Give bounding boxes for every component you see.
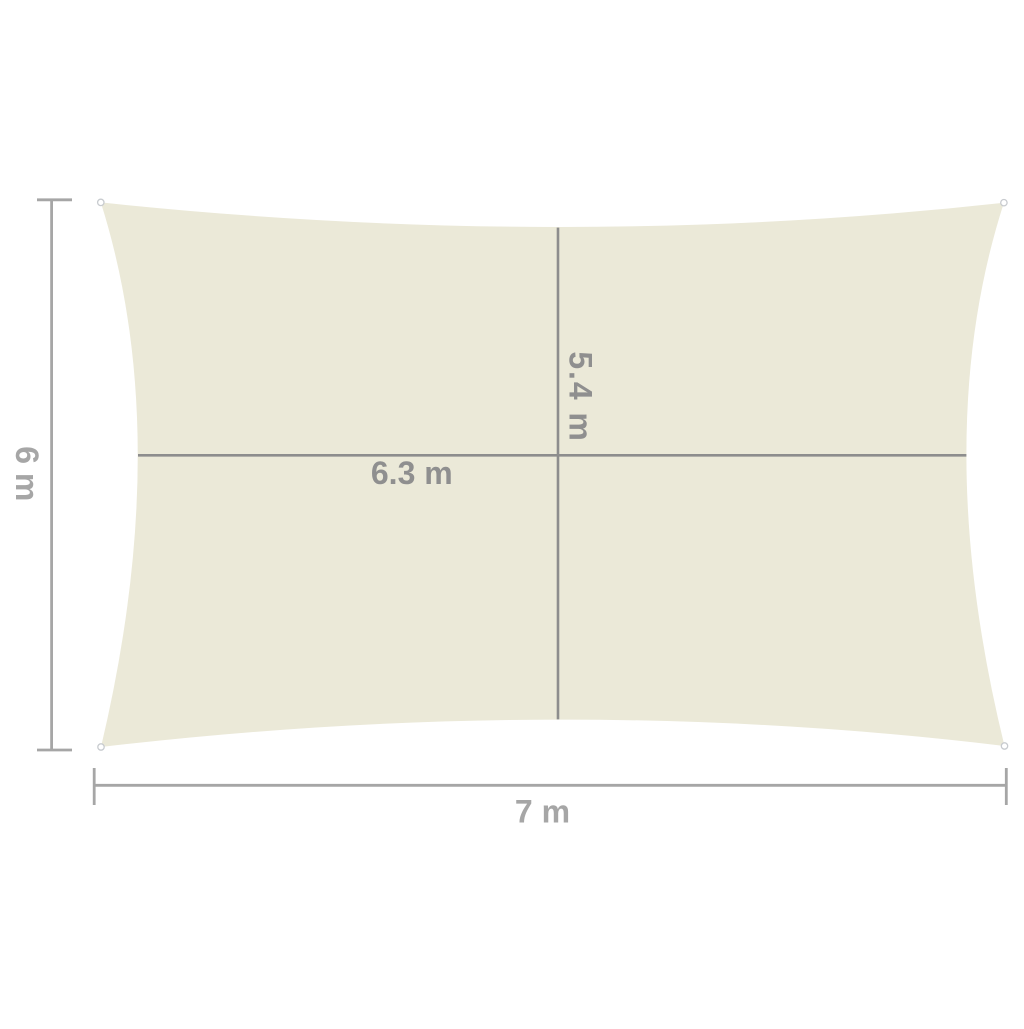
svg-text:5.4 m: 5.4 m — [563, 351, 599, 442]
svg-text:7 m: 7 m — [515, 793, 570, 829]
svg-text:6.3 m: 6.3 m — [371, 455, 453, 491]
svg-text:6 m: 6 m — [9, 446, 45, 501]
